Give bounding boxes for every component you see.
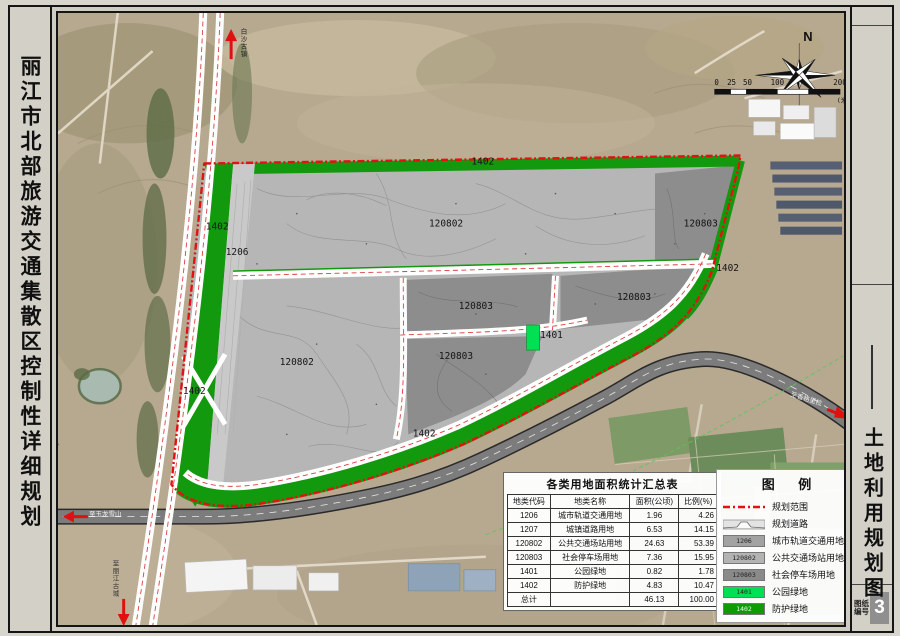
parcel-label: 1402 xyxy=(471,156,494,167)
cell-name: 公园绿地 xyxy=(550,565,630,579)
plan-main-title: 丽江市北部旅游交通集散区控制性详细规划 xyxy=(15,55,45,530)
right-title-column: 土地利用规划图 图纸 编号 3 xyxy=(850,7,892,631)
table-row: 120802 公共交通场站用地 24.63 53.39 xyxy=(508,537,718,551)
table-row: 1401 公园绿地 0.82 1.78 xyxy=(508,565,718,579)
title-block-section xyxy=(852,7,892,26)
cell-code: 1402 xyxy=(508,579,551,593)
cell-code: 总计 xyxy=(508,593,551,607)
cell-ratio: 1.78 xyxy=(679,565,718,579)
legend-swatch: 120803 xyxy=(723,569,765,581)
title-block-section: 土地利用规划图 xyxy=(852,285,892,584)
cell-ratio: 14.15 xyxy=(679,523,718,537)
parcel-label: 1402 xyxy=(413,428,436,439)
legend-item-1206: 1206 城市轨道交通用地 xyxy=(723,532,846,549)
cell-name: 城镇道路用地 xyxy=(550,523,630,537)
sheet-number-label: 图纸 编号 xyxy=(854,600,869,617)
parcel-label: 120803 xyxy=(684,219,718,230)
cell-area: 1.96 xyxy=(630,509,679,523)
col-header: 面积(公顷) xyxy=(630,495,679,509)
cell-area: 0.82 xyxy=(630,565,679,579)
parcel-label: 120803 xyxy=(459,301,493,312)
legend-item-road: 规划道路 xyxy=(723,515,846,532)
cell-name: 防护绿地 xyxy=(550,579,630,593)
legend-label: 规划范围 xyxy=(772,500,808,513)
cell-name xyxy=(550,593,630,607)
legend-item-120803: 120803 社会停车场用地 xyxy=(723,566,846,583)
cell-ratio: 100.00 xyxy=(679,593,718,607)
scale-tick: 0 xyxy=(714,78,719,87)
cell-area: 6.53 xyxy=(630,523,679,537)
area-statistics-panel: 各类用地面积统计汇总表 地类代码 地类名称 面积(公顷) 比例(%) 1206 xyxy=(503,472,722,611)
cell-name: 公共交通场站用地 xyxy=(550,537,630,551)
cell-ratio: 4.26 xyxy=(679,509,718,523)
scale-tick: 200 xyxy=(833,78,844,87)
cell-code: 1401 xyxy=(508,565,551,579)
col-header: 地类名称 xyxy=(550,495,630,509)
plan-sheet: 丽江市北部旅游交通集散区控制性详细规划 xyxy=(8,5,894,633)
table-row: 1402 防护绿地 4.83 10.47 xyxy=(508,579,718,593)
scale-tick: 25 xyxy=(727,78,736,87)
legend-label: 社会停车场用地 xyxy=(772,568,835,581)
table-header-row: 地类代码 地类名称 面积(公顷) 比例(%) xyxy=(508,495,718,509)
scale-tick: 100 xyxy=(771,78,785,87)
cell-ratio: 10.47 xyxy=(679,579,718,593)
legend-item-boundary: 规划范围 xyxy=(723,498,846,515)
cell-area: 4.83 xyxy=(630,579,679,593)
cell-name: 城市轨道交通用地 xyxy=(550,509,630,523)
cell-ratio: 15.95 xyxy=(679,551,718,565)
parcel-1401-park xyxy=(527,325,540,350)
table-row: 1206 城市轨道交通用地 1.96 4.26 xyxy=(508,509,718,523)
table-row: 120803 社会停车场用地 7.36 15.95 xyxy=(508,551,718,565)
parcel-label: 120802 xyxy=(429,219,463,230)
divider-dash xyxy=(871,345,873,409)
cell-area: 7.36 xyxy=(630,551,679,565)
legend-label: 公园绿地 xyxy=(772,585,808,598)
legend-item-120802: 120802 公共交通场站用地 xyxy=(723,549,846,566)
cell-area: 46.13 xyxy=(630,593,679,607)
boundary-line-icon xyxy=(723,501,765,513)
parcel-label: 1402 xyxy=(183,386,206,397)
legend-label: 城市轨道交通用地 xyxy=(772,534,844,547)
legend-label: 规划道路 xyxy=(772,517,808,530)
parcel-label: 120803 xyxy=(617,292,651,303)
parcel-label: 1402 xyxy=(716,263,739,274)
scale-tick: 50 xyxy=(743,78,752,87)
map-cell: 1402 1402 1206 120802 120803 1402 120803… xyxy=(52,7,850,631)
direction-label-south: 至丽江古城 xyxy=(111,560,118,598)
table-row-total: 总计 46.13 100.00 xyxy=(508,593,718,607)
road-section-icon xyxy=(723,518,765,530)
legend-swatch: 120802 xyxy=(723,552,765,564)
legend-label: 防护绿地 xyxy=(772,602,808,615)
cell-ratio: 53.39 xyxy=(679,537,718,551)
legend-item-1402: 1402 防护绿地 xyxy=(723,600,846,617)
compass-north-label: N xyxy=(803,29,812,44)
table-row: 1207 城镇道路用地 6.53 14.15 xyxy=(508,523,718,537)
left-title-column: 丽江市北部旅游交通集散区控制性详细规划 xyxy=(10,7,52,631)
parcel-label: 120802 xyxy=(280,357,314,368)
legend-swatch: 1401 xyxy=(723,586,765,598)
legend-panel: 图 例 规划范围 规划道路 xyxy=(716,469,846,623)
legend-swatch: 1402 xyxy=(723,603,765,615)
col-header: 地类代码 xyxy=(508,495,551,509)
cell-code: 1207 xyxy=(508,523,551,537)
parcel-label: 120803 xyxy=(439,351,473,362)
cell-code: 120802 xyxy=(508,537,551,551)
statistics-table: 地类代码 地类名称 面积(公顷) 比例(%) 1206 城市轨道交通用地 1.9… xyxy=(507,494,718,607)
sheet-number-label-line2: 编号 xyxy=(854,608,869,617)
cell-name: 社会停车场用地 xyxy=(550,551,630,565)
cell-area: 24.63 xyxy=(630,537,679,551)
col-header: 比例(%) xyxy=(679,495,718,509)
cell-code: 1206 xyxy=(508,509,551,523)
legend-swatch: 1206 xyxy=(723,535,765,547)
direction-label-west: 至玉龙雪山 xyxy=(89,511,122,518)
legend-title: 图 例 xyxy=(723,474,846,493)
legend-item-1401: 1401 公园绿地 xyxy=(723,583,846,600)
statistics-table-title: 各类用地面积统计汇总表 xyxy=(507,476,718,492)
parcel-label: 1206 xyxy=(226,247,249,258)
cell-code: 120803 xyxy=(508,551,551,565)
parcel-label: 1402 xyxy=(206,222,229,233)
title-block-section xyxy=(852,26,892,285)
scale-unit: (米) xyxy=(837,95,844,104)
map-panel: 1402 1402 1206 120802 120803 1402 120803… xyxy=(56,11,846,627)
direction-label-north: 白沙古镇 xyxy=(239,28,246,58)
legend-label: 公共交通场站用地 xyxy=(772,551,844,564)
drawing-title: 土地利用规划图 xyxy=(858,427,887,602)
parcel-label: 1401 xyxy=(540,330,563,341)
